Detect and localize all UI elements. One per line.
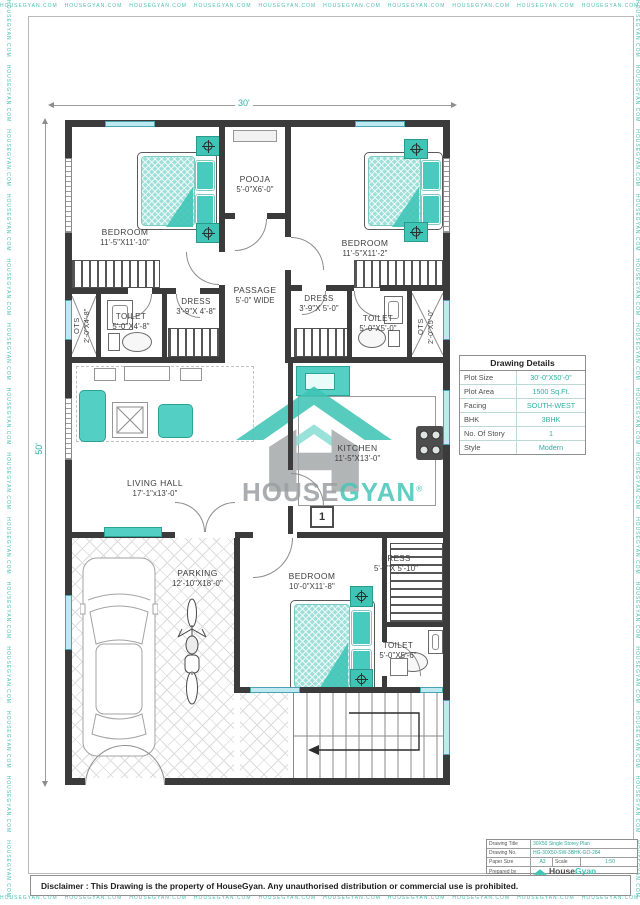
sofa — [79, 390, 106, 442]
table-row: Plot Area1500 Sq.Ft. — [460, 385, 585, 399]
disclaimer-bar: Disclaimer : This Drawing is the propert… — [30, 875, 631, 896]
tv-unit — [104, 527, 162, 537]
wardrobe — [168, 328, 222, 357]
side-table — [180, 368, 202, 381]
disclaimer-text: Disclaimer : This Drawing is the propert… — [41, 881, 518, 891]
pillow — [196, 161, 214, 190]
wall — [65, 357, 225, 363]
floor-plan-sheet: HOUSEGYAN.COM HOUSEGYAN.COM HOUSEGYAN.CO… — [0, 0, 640, 905]
stove — [416, 426, 444, 460]
pillow — [422, 161, 440, 190]
title-block-row: Drawing No. HG-30X50-SW-3BHK-GO-284 — [487, 849, 637, 858]
label-dress-left: DRESS3'-9"X 4'-8" — [174, 297, 218, 318]
table-row: StyleModern — [460, 441, 585, 454]
column-marker: 1 — [310, 506, 334, 528]
label-bedroom-top-right: BEDROOM11'-5"X11'-2" — [310, 238, 420, 259]
window — [355, 121, 405, 127]
toilet-cistern — [108, 333, 120, 351]
armchair — [158, 404, 193, 438]
ac-unit-icon — [196, 223, 220, 243]
watermark-text-top: HOUSEGYAN.COM HOUSEGYAN.COM HOUSEGYAN.CO… — [0, 3, 640, 12]
table-row: Plot Size30'-0"X50'-0" — [460, 371, 585, 385]
dimension-top-label: 30' — [235, 98, 253, 108]
side-table — [94, 368, 116, 381]
label-pooja: POOJA5'-0"X6'-0" — [226, 174, 284, 195]
label-toilet-bottom: TOILET5'-0"X5'-6" — [360, 641, 436, 662]
label-bedroom-bottom: BEDROOM10'-0"X11'-8" — [258, 571, 366, 592]
staircase — [293, 693, 444, 778]
label-living-hall: LIVING HALL17'-1"x13'-0" — [95, 478, 215, 499]
window — [443, 158, 450, 233]
window — [65, 158, 72, 233]
arrow-left-icon — [48, 102, 54, 108]
pillow — [352, 611, 371, 645]
window — [443, 700, 450, 755]
window — [65, 595, 72, 650]
label-ots-right: OTS2'-0"X5'-0" — [416, 296, 438, 358]
window — [443, 300, 450, 340]
bed — [137, 152, 217, 230]
wall — [162, 294, 167, 357]
drawing-details-table: Drawing Details Plot Size30'-0"X50'-0" P… — [459, 355, 586, 455]
label-toilet-right: TOILET5'-0"X5'-0" — [347, 314, 409, 335]
wall — [380, 285, 450, 291]
housegyan-watermark-text: HOUSEGYAN® — [242, 477, 423, 508]
wardrobe — [354, 260, 443, 288]
window — [420, 687, 443, 693]
wall — [285, 127, 291, 237]
stair-treads — [294, 693, 444, 778]
label-dress-right: DRESS3'-9"X 5'-0" — [296, 294, 342, 315]
label-passage: PASSAGE5'-0" WIDE — [224, 285, 286, 306]
bed — [364, 152, 443, 230]
toilet-wc — [122, 332, 152, 352]
dimension-line-left — [45, 120, 46, 785]
arrow-up-icon — [42, 118, 48, 124]
title-block: Drawing Title 30X50 Single Storey Plan D… — [486, 839, 638, 874]
pillow — [422, 195, 440, 224]
watermark-text-left: HOUSEGYAN.COM HOUSEGYAN.COM HOUSEGYAN.CO… — [2, 0, 11, 905]
stove-burners — [416, 426, 444, 460]
motorcycle-icon — [175, 595, 209, 710]
arrow-down-icon — [42, 781, 48, 787]
wall — [297, 532, 450, 538]
coffee-table — [112, 402, 148, 438]
parking-floor — [240, 693, 288, 778]
ac-unit-icon — [404, 139, 428, 159]
arrow-right-icon — [451, 102, 457, 108]
wall — [267, 213, 291, 219]
table-row: BHK3BHK — [460, 413, 585, 427]
label-toilet-left: TOILET5'-0"X4'-8" — [101, 312, 161, 333]
wall — [234, 538, 240, 690]
wall — [219, 213, 235, 219]
window — [105, 121, 155, 127]
table-row: No. Of Story1 — [460, 427, 585, 441]
wall — [219, 127, 225, 252]
table-cross — [113, 403, 147, 437]
window — [65, 300, 72, 340]
label-ots-left: OTS2'-0"X4'-8" — [72, 296, 94, 356]
drawing-details-title: Drawing Details — [460, 356, 585, 371]
wardrobe — [294, 328, 348, 357]
ac-unit-icon — [196, 136, 220, 156]
window — [443, 390, 450, 445]
label-bedroom-top-left: BEDROOM11'-5"X11'-10" — [70, 227, 180, 248]
wall — [200, 288, 225, 294]
dimension-left-label: 50' — [34, 440, 44, 458]
window — [250, 687, 300, 693]
wall — [285, 270, 291, 363]
watermark-text-bottom: HOUSEGYAN.COM HOUSEGYAN.COM HOUSEGYAN.CO… — [0, 895, 640, 904]
label-kitchen: KITCHEN11'-5"X13'-0" — [310, 443, 405, 464]
pooja-shelf — [233, 130, 277, 142]
title-block-row: Drawing Title 30X50 Single Storey Plan — [487, 840, 637, 849]
wall — [288, 506, 293, 534]
wall — [291, 285, 302, 291]
table-row: FacingSOUTH-WEST — [460, 399, 585, 413]
label-parking: PARKING12'-10"X18'-0" — [145, 568, 250, 589]
wardrobe — [72, 260, 160, 288]
pillow — [196, 195, 214, 224]
window — [65, 398, 72, 460]
label-dress-bottom: DRESS5'-0"X 5'-10" — [372, 554, 420, 575]
console-table — [124, 366, 170, 381]
wall — [288, 363, 293, 470]
wall — [387, 622, 450, 627]
